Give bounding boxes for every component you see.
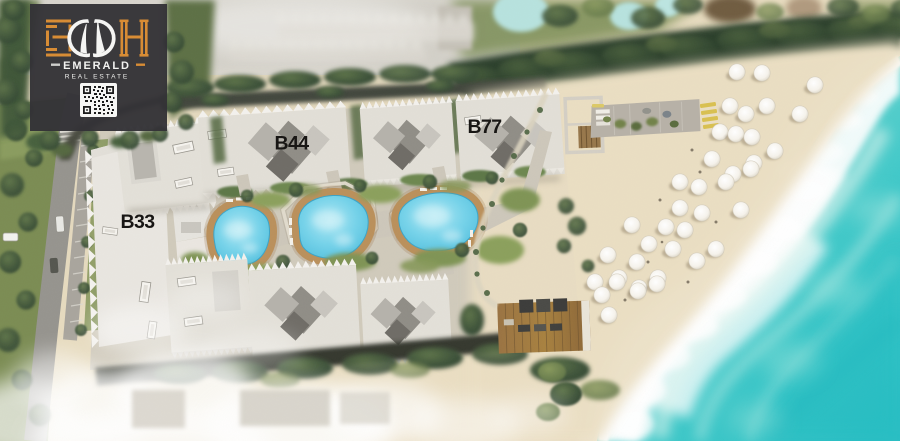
svg-text:EMERALD: EMERALD — [63, 60, 131, 72]
svg-text:REAL ESTATE: REAL ESTATE — [65, 74, 129, 81]
